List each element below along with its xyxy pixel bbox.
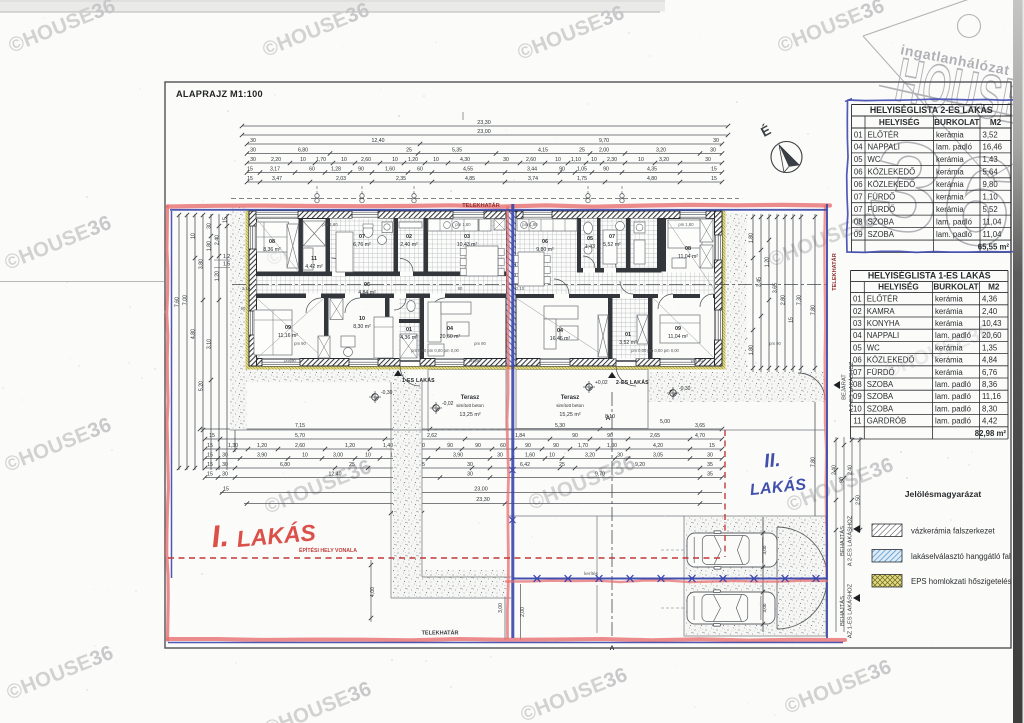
svg-text:pm 1,80: pm 1,80 [322, 222, 338, 227]
svg-text:90: 90 [559, 167, 565, 173]
svg-text:NAPPALI: NAPPALI [868, 143, 900, 152]
svg-text:2,50: 2,50 [856, 495, 862, 505]
svg-text:Terasz: Terasz [561, 395, 580, 401]
svg-text:kerámia: kerámia [936, 168, 964, 177]
svg-text:30: 30 [497, 453, 503, 459]
svg-text:4,80: 4,80 [647, 176, 657, 182]
svg-text:2,00: 2,00 [520, 607, 526, 617]
svg-text:11: 11 [311, 256, 317, 262]
svg-text:9,70: 9,70 [595, 472, 605, 478]
svg-text:1,43: 1,43 [585, 244, 595, 250]
svg-text:-0,30: -0,30 [679, 386, 691, 392]
svg-text:A 2-ES LAKÁSHOZ: A 2-ES LAKÁSHOZ [847, 515, 854, 566]
svg-text:9,80: 9,80 [983, 180, 999, 189]
svg-text:10: 10 [555, 157, 561, 163]
svg-text:23,30: 23,30 [477, 120, 491, 126]
svg-text:11,04 m²: 11,04 m² [668, 334, 688, 340]
svg-text:KÖZLEKEDŐ: KÖZLEKEDŐ [867, 356, 915, 365]
svg-text:12,40: 12,40 [372, 138, 385, 144]
svg-text:13,25 m²: 13,25 m² [459, 412, 480, 418]
svg-text:3,20: 3,20 [659, 157, 669, 163]
svg-text:04: 04 [854, 143, 863, 152]
svg-text:kerámia: kerámia [935, 368, 963, 377]
svg-text:11,04: 11,04 [983, 230, 1003, 239]
svg-text:GARDRÓB: GARDRÓB [867, 417, 906, 426]
svg-text:BEHAJTÁS: BEHAJTÁS [839, 596, 846, 626]
svg-text:lam. padló: lam. padló [935, 331, 972, 340]
svg-text:07: 07 [359, 234, 365, 240]
svg-text:KÖZLEKEDŐ: KÖZLEKEDŐ [868, 168, 916, 177]
svg-text:3,74: 3,74 [528, 176, 538, 182]
svg-text:SZOBA: SZOBA [867, 392, 894, 401]
svg-text:8,36: 8,36 [982, 380, 997, 389]
svg-text:25: 25 [579, 148, 585, 154]
svg-text:3,00: 3,00 [762, 545, 767, 554]
svg-text:1,30: 1,30 [228, 443, 238, 449]
svg-text:10: 10 [341, 157, 347, 163]
svg-text:WC: WC [867, 343, 880, 352]
svg-text:6,42: 6,42 [520, 462, 530, 468]
svg-text:BURKOLAT: BURKOLAT [933, 283, 978, 292]
svg-text:SZOBA: SZOBA [868, 230, 895, 239]
svg-text:5,52 m²: 5,52 m² [603, 242, 621, 248]
svg-text:30: 30 [705, 157, 711, 163]
svg-text:kerámia: kerámia [935, 307, 963, 316]
svg-text:kerámia: kerámia [935, 295, 963, 304]
svg-text:15: 15 [209, 433, 215, 439]
svg-text:15: 15 [711, 176, 717, 182]
svg-text:35: 35 [707, 462, 713, 468]
svg-text:lam. padló: lam. padló [935, 404, 972, 413]
svg-text:90: 90 [458, 286, 463, 291]
svg-text:10: 10 [638, 157, 644, 163]
svg-text:1,70: 1,70 [316, 157, 326, 163]
svg-text:1,05: 1,05 [577, 167, 587, 173]
svg-text:90: 90 [447, 443, 453, 449]
svg-text:10: 10 [549, 453, 555, 459]
svg-text:4,85: 4,85 [465, 176, 475, 182]
svg-text:1,80: 1,80 [207, 241, 213, 251]
svg-text:20,60 m²: 20,60 m² [440, 334, 461, 340]
svg-text:4,84 m²: 4,84 m² [358, 290, 376, 296]
svg-text:06: 06 [364, 282, 370, 288]
svg-text:1,43: 1,43 [983, 155, 998, 164]
svg-text:3,65: 3,65 [695, 423, 705, 429]
svg-text:12,40: 12,40 [329, 472, 342, 478]
svg-text:5,52: 5,52 [983, 205, 998, 214]
svg-text:2-ES LAKÁS: 2-ES LAKÁS [616, 379, 649, 386]
svg-text:HELYISÉGLISTA 2-ES LAKÁS: HELYISÉGLISTA 2-ES LAKÁS [870, 105, 993, 115]
svg-text:6,76 m²: 6,76 m² [353, 242, 371, 248]
svg-text:1,20: 1,20 [215, 271, 221, 281]
svg-text:3,52: 3,52 [983, 130, 998, 139]
svg-text:03: 03 [853, 319, 862, 328]
svg-text:3,05: 3,05 [653, 453, 663, 459]
svg-text:lam. padló: lam. padló [936, 143, 973, 152]
svg-text:3,80: 3,80 [199, 259, 205, 269]
svg-text:3,20: 3,20 [656, 148, 666, 154]
svg-text:9,20: 9,20 [635, 462, 645, 468]
svg-text:2,60: 2,60 [526, 157, 536, 163]
svg-text:-0,02: -0,02 [442, 401, 454, 407]
svg-text:10: 10 [365, 453, 371, 459]
svg-text:4,42: 4,42 [982, 417, 997, 426]
svg-text:1,75: 1,75 [577, 176, 587, 182]
svg-text:7,80: 7,80 [811, 305, 817, 315]
svg-text:FÜRDŐ: FÜRDŐ [867, 368, 895, 377]
svg-text:11,04: 11,04 [983, 217, 1003, 226]
svg-text:7,80: 7,80 [811, 457, 817, 467]
svg-text:08: 08 [854, 217, 863, 226]
svg-text:60: 60 [309, 167, 315, 173]
svg-text:01: 01 [625, 332, 631, 338]
svg-text:16,46 m²: 16,46 m² [550, 336, 571, 342]
svg-text:lam. padló: lam. padló [935, 392, 972, 401]
svg-text:4,84: 4,84 [982, 356, 998, 365]
svg-text:KÖZLEKEDŐ: KÖZLEKEDŐ [868, 180, 916, 189]
svg-text:3,20: 3,20 [585, 453, 595, 459]
svg-text:03: 03 [464, 234, 470, 240]
svg-text:2,20: 2,20 [271, 157, 281, 163]
svg-text:25: 25 [559, 462, 565, 468]
svg-text:7,30: 7,30 [797, 295, 803, 305]
svg-text:02: 02 [406, 234, 412, 240]
svg-text:16,46: 16,46 [983, 143, 1003, 152]
svg-text:30: 30 [467, 462, 473, 468]
svg-text:2,10: 2,10 [516, 286, 525, 291]
svg-text:1,35: 1,35 [982, 343, 998, 352]
svg-text:15: 15 [789, 317, 795, 323]
svg-text:TELEKHATÁR: TELEKHATÁR [422, 630, 459, 637]
svg-text:3,00: 3,00 [762, 603, 767, 612]
svg-text:2,03: 2,03 [336, 176, 346, 182]
svg-text:A 2-ES LAKÁSHOZ: A 2-ES LAKÁSHOZ [848, 361, 855, 412]
svg-text:10: 10 [359, 316, 365, 322]
svg-text:pm 0,00 pm 0,00 pm 0,00: pm 0,00 pm 0,00 pm 0,00 [411, 348, 459, 353]
svg-text:30: 30 [222, 462, 228, 468]
svg-text:5,00: 5,00 [660, 419, 670, 425]
svg-text:pm 1,80: pm 1,80 [522, 222, 538, 227]
svg-text:6,80: 6,80 [280, 462, 290, 468]
svg-text:M2: M2 [988, 283, 1000, 292]
svg-text:kerámia: kerámia [935, 319, 963, 328]
svg-text:2,00: 2,00 [599, 148, 609, 154]
svg-text:3,52 m²: 3,52 m² [619, 340, 637, 346]
svg-text:SZOBA: SZOBA [867, 380, 894, 389]
svg-text:1,70: 1,70 [578, 443, 588, 449]
svg-text:lam. padló: lam. padló [935, 380, 972, 389]
svg-text:1,20: 1,20 [408, 157, 418, 163]
svg-text:30: 30 [222, 472, 228, 478]
svg-text:90: 90 [475, 443, 481, 449]
svg-text:25: 25 [406, 148, 412, 154]
svg-text:3,17: 3,17 [270, 167, 280, 173]
svg-text:ELŐTÉR: ELŐTÉR [867, 295, 899, 304]
svg-text:06: 06 [542, 239, 548, 245]
svg-text:23,00: 23,00 [474, 487, 488, 493]
svg-text:pm 90: pm 90 [691, 358, 703, 363]
svg-text:HELYISÉG: HELYISÉG [878, 282, 919, 292]
svg-text:1,10: 1,10 [983, 193, 999, 202]
svg-text:1,10: 1,10 [571, 157, 581, 163]
svg-text:2,30: 2,30 [607, 157, 617, 163]
svg-text:pm|90: pm|90 [284, 358, 296, 363]
svg-text:30: 30 [207, 223, 213, 229]
svg-text:7,00: 7,00 [183, 295, 189, 305]
svg-text:20,60: 20,60 [982, 331, 1002, 340]
svg-text:KONYHA: KONYHA [867, 319, 901, 328]
svg-text:A: A [606, 415, 611, 422]
svg-text:30: 30 [222, 453, 228, 459]
svg-text:TELEKHATÁR: TELEKHATÁR [462, 202, 500, 209]
svg-text:pm 90: pm 90 [769, 341, 781, 346]
svg-text:11,04 m²: 11,04 m² [678, 254, 698, 260]
svg-text:4,35: 4,35 [647, 167, 657, 173]
svg-text:3,90: 3,90 [453, 453, 463, 459]
svg-text:15: 15 [223, 487, 229, 493]
svg-text:5,64: 5,64 [983, 168, 999, 177]
svg-text:10: 10 [300, 157, 306, 163]
svg-text:09: 09 [285, 325, 291, 331]
svg-text:25: 25 [349, 462, 355, 468]
svg-text:10,43 m²: 10,43 m² [457, 242, 478, 248]
svg-text:2,80: 2,80 [781, 295, 787, 305]
svg-text:04: 04 [557, 328, 563, 334]
svg-text:pm 1,80: pm 1,80 [678, 222, 694, 227]
svg-text:NAPPALI: NAPPALI [867, 331, 899, 340]
svg-text:90: 90 [572, 433, 578, 439]
svg-text:A: A [610, 645, 615, 652]
svg-text:4,20: 4,20 [653, 443, 663, 449]
svg-text:11,16 m²: 11,16 m² [278, 333, 298, 339]
svg-text:11: 11 [853, 417, 861, 426]
svg-text:kerámia: kerámia [936, 155, 964, 164]
svg-text:simított beton: simított beton [456, 403, 484, 408]
svg-text:60: 60 [417, 167, 423, 173]
svg-text:8,30: 8,30 [982, 404, 998, 413]
svg-text:7,15: 7,15 [295, 423, 305, 429]
svg-text:1,60: 1,60 [385, 167, 395, 173]
svg-text:3,47: 3,47 [272, 176, 282, 182]
svg-text:90: 90 [553, 443, 559, 449]
svg-text:10: 10 [433, 157, 439, 163]
svg-text:09: 09 [675, 326, 681, 332]
svg-text:09: 09 [854, 230, 863, 239]
svg-text:05: 05 [854, 155, 863, 164]
svg-text:M2: M2 [990, 118, 1002, 127]
svg-text:BURKOLAT: BURKOLAT [934, 118, 979, 127]
svg-text:01: 01 [854, 130, 863, 139]
svg-text:4,36 m²: 4,36 m² [400, 335, 418, 341]
svg-text:9,80 m²: 9,80 m² [536, 247, 554, 253]
svg-text:10: 10 [302, 453, 308, 459]
svg-text:ALAPRAJZ: ALAPRAJZ [176, 89, 227, 99]
svg-text:FÜRDŐ: FÜRDŐ [868, 193, 896, 202]
svg-text:lam. padló: lam. padló [935, 417, 972, 426]
svg-text:2,40: 2,40 [215, 235, 221, 245]
svg-text:KAMRA: KAMRA [867, 307, 896, 316]
svg-text:3,90: 3,90 [257, 453, 267, 459]
svg-text:kerámia: kerámia [935, 356, 963, 365]
svg-text:Terasz: Terasz [461, 395, 480, 401]
svg-text:pm 90: pm 90 [474, 341, 486, 346]
svg-text:30: 30 [467, 472, 473, 478]
svg-text:EPS homlokzati hőszigetelés: EPS homlokzati hőszigetelés [911, 577, 1012, 586]
svg-text:1,60: 1,60 [525, 453, 535, 459]
svg-text:4,15: 4,15 [538, 148, 548, 154]
svg-text:15: 15 [207, 462, 213, 468]
svg-text:5,70: 5,70 [295, 433, 305, 439]
svg-text:2,35: 2,35 [396, 176, 406, 182]
svg-text:ÉPÍTÉSI HELY VONALA: ÉPÍTÉSI HELY VONALA [299, 546, 357, 554]
svg-text:4,42 m²: 4,42 m² [305, 264, 323, 270]
svg-text:30: 30 [250, 138, 256, 144]
svg-text:65,55 m²: 65,55 m² [978, 242, 1010, 251]
svg-text:07: 07 [854, 205, 863, 214]
svg-text:2,60: 2,60 [361, 157, 371, 163]
svg-text:6,80: 6,80 [298, 148, 308, 154]
svg-text:SZOBA: SZOBA [867, 404, 894, 413]
svg-text:TELEKHATÁR: TELEKHATÁR [831, 253, 838, 291]
svg-text:6,76: 6,76 [982, 368, 997, 377]
svg-text:10,43: 10,43 [982, 319, 1002, 328]
svg-text:pm|90: pm|90 [469, 358, 481, 363]
svg-text:1,84: 1,84 [515, 433, 525, 439]
svg-text:FÜRDŐ: FÜRDŐ [868, 205, 896, 214]
svg-text:11,16: 11,16 [982, 392, 1001, 401]
svg-text:HELYISÉGLISTA 1-ES LAKÁS: HELYISÉGLISTA 1-ES LAKÁS [868, 271, 991, 281]
svg-text:pm 1,80: pm 1,80 [455, 222, 471, 227]
svg-text:+0,02: +0,02 [595, 380, 608, 386]
svg-text:15: 15 [207, 453, 213, 459]
svg-text:3,10: 3,10 [207, 339, 213, 349]
svg-text:1,80: 1,80 [749, 233, 755, 243]
svg-text:01: 01 [853, 295, 862, 304]
svg-text:15,25 m²: 15,25 m² [559, 412, 580, 418]
svg-text:kerámia: kerámia [936, 193, 964, 202]
svg-text:60: 60 [500, 443, 506, 449]
svg-text:30: 30 [250, 148, 256, 154]
svg-text:M1:100: M1:100 [230, 89, 263, 99]
svg-text:06: 06 [854, 168, 863, 177]
svg-text:Jelölésmagyarázat: Jelölésmagyarázat [905, 489, 982, 499]
svg-text:II.: II. [763, 449, 781, 473]
svg-text:15: 15 [709, 443, 715, 449]
svg-text:10: 10 [392, 157, 398, 163]
svg-text:3,45: 3,45 [757, 277, 763, 287]
svg-text:06: 06 [854, 180, 863, 189]
svg-text:01: 01 [406, 327, 412, 333]
svg-text:90: 90 [358, 167, 364, 173]
svg-text:07: 07 [609, 234, 615, 240]
svg-text:5,20: 5,20 [199, 381, 205, 391]
svg-text:vázkerámia falszerkezet: vázkerámia falszerkezet [911, 527, 995, 536]
svg-text:WC: WC [868, 155, 881, 164]
svg-text:2,62: 2,62 [427, 433, 437, 439]
svg-text:23,30: 23,30 [476, 497, 490, 503]
svg-text:07: 07 [854, 193, 863, 202]
svg-text:8,36 m²: 8,36 m² [263, 247, 281, 253]
svg-text:-0,30: -0,30 [381, 390, 393, 396]
svg-text:simított beton: simított beton [556, 403, 584, 408]
svg-text:23,00: 23,00 [477, 129, 491, 135]
svg-text:2,10: 2,10 [242, 286, 251, 291]
svg-text:10: 10 [191, 233, 197, 239]
svg-text:4,36: 4,36 [982, 295, 997, 304]
svg-text:15: 15 [711, 167, 717, 173]
svg-text:1,80: 1,80 [749, 345, 755, 355]
svg-text:04: 04 [853, 331, 862, 340]
svg-text:30: 30 [503, 157, 509, 163]
svg-text:1,20: 1,20 [257, 443, 267, 449]
svg-text:05: 05 [587, 236, 593, 242]
svg-text:2,65: 2,65 [650, 433, 660, 439]
svg-text:4,30: 4,30 [460, 157, 470, 163]
svg-text:ELŐTÉR: ELŐTÉR [868, 130, 900, 139]
svg-text:BEHAJTÁS: BEHAJTÁS [839, 526, 846, 556]
svg-text:08: 08 [269, 239, 275, 245]
svg-text:2,60: 2,60 [295, 443, 305, 449]
svg-text:1,20: 1,20 [765, 257, 771, 267]
svg-text:30: 30 [617, 453, 623, 459]
svg-text:3,00: 3,00 [333, 453, 343, 459]
svg-text:1,40: 1,40 [383, 443, 393, 449]
svg-text:9,70: 9,70 [599, 138, 609, 144]
svg-text:08: 08 [685, 246, 691, 252]
svg-text:AZ 1-ES LAKÁSHOZ: AZ 1-ES LAKÁSHOZ [847, 583, 854, 638]
svg-text:4,55: 4,55 [463, 167, 473, 173]
svg-text:30: 30 [707, 453, 713, 459]
svg-text:lakáselválasztó hanggátló fal: lakáselválasztó hanggátló fal [911, 552, 1011, 561]
svg-text:kerámia: kerámia [935, 343, 963, 352]
svg-text:1-ES LAKÁS: 1-ES LAKÁS [402, 377, 435, 384]
svg-text:I.: I. [210, 518, 230, 554]
svg-text:04: 04 [447, 326, 453, 332]
svg-text:kerámia: kerámia [936, 205, 964, 214]
svg-text:pm 0,00 pm 0,00 pm 0,00: pm 0,00 pm 0,00 pm 0,00 [631, 348, 679, 353]
svg-text:90: 90 [603, 167, 609, 173]
svg-text:30: 30 [713, 138, 719, 144]
svg-text:3,00: 3,00 [498, 603, 504, 613]
svg-text:1,28: 1,28 [331, 167, 341, 173]
svg-text:4,80: 4,80 [191, 329, 197, 339]
svg-text:pm 90: pm 90 [294, 341, 306, 346]
svg-text:30: 30 [250, 157, 256, 163]
svg-text:BEJÁRAT: BEJÁRAT [841, 374, 848, 400]
svg-text:4,00: 4,00 [370, 587, 376, 597]
svg-text:2,40: 2,40 [982, 307, 998, 316]
svg-text:1,20: 1,20 [345, 443, 355, 449]
svg-text:90: 90 [525, 443, 531, 449]
svg-text:05: 05 [853, 343, 862, 352]
svg-text:lam. padló: lam. padló [936, 217, 973, 226]
svg-text:kerámia: kerámia [936, 130, 964, 139]
svg-text:2,40: 2,40 [848, 465, 854, 475]
svg-text:lam. padló: lam. padló [936, 230, 973, 239]
svg-text:8,30 m²: 8,30 m² [353, 324, 371, 330]
svg-text:2,40 m²: 2,40 m² [400, 242, 418, 248]
svg-text:5,35: 5,35 [452, 148, 462, 154]
svg-text:35: 35 [707, 472, 713, 478]
svg-text:15: 15 [207, 472, 213, 478]
svg-text:15: 15 [207, 443, 213, 449]
svg-text:4,70: 4,70 [695, 433, 705, 439]
svg-text:02: 02 [853, 307, 862, 316]
svg-text:30: 30 [710, 148, 716, 154]
svg-text:kerítés: kerítés [584, 571, 598, 576]
svg-text:HELYISÉG: HELYISÉG [879, 117, 920, 127]
svg-text:3,44: 3,44 [527, 167, 537, 173]
